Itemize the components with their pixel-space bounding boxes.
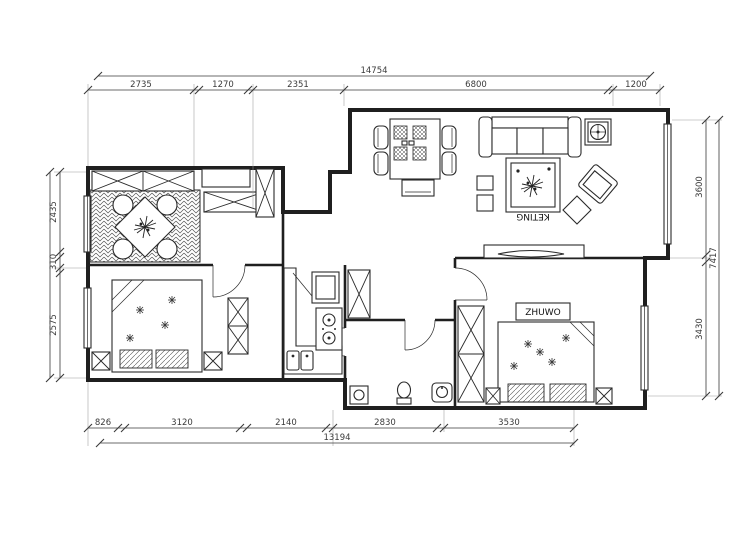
toilet [397,382,411,404]
dim-label: 2351 [287,80,309,90]
tatami-room [90,169,274,262]
dining-chair [442,126,456,149]
cabinet-column [348,270,370,318]
side-table [477,176,493,190]
dim-label: 2575 [49,314,59,336]
master-bedroom-label: ZHUWO [525,308,561,318]
dim-label: 3600 [695,176,705,198]
wardrobe-master [458,306,484,402]
dim-label: 3430 [695,318,705,340]
nightstand [204,352,222,370]
pillow [156,350,188,368]
place-setting [394,126,407,139]
nightstand [92,352,110,370]
bathroom [350,382,452,404]
ottoman [563,196,591,224]
door-bedroom2 [213,265,245,297]
dining-chair [374,126,388,149]
dim-label: 3530 [498,418,520,428]
dim-total-label: 13194 [323,433,350,443]
sofa [479,117,581,157]
side-table [477,195,493,211]
dim-label: 6800 [465,80,487,90]
floor-plan-canvas: ZHUWO [0,0,740,551]
door-bathroom [405,320,435,350]
dining-chair [374,152,388,175]
rug [506,158,560,212]
dim-label: 2830 [374,418,396,428]
wardrobe-tatami [92,171,194,191]
door-master-bedroom [455,268,487,300]
plant-stand-corner [585,119,611,145]
dimension-left: 2435 310 2575 [46,168,86,382]
washbasin [432,383,452,402]
wardrobe-bedroom2 [228,298,248,354]
dim-label: 2735 [130,80,152,90]
window-bedroom2 [84,288,91,348]
tv-cabinet [484,245,584,258]
nightstand [596,388,612,404]
dim-label: 2140 [275,418,297,428]
stove [316,308,342,350]
window-master [641,306,648,390]
dim-label: 310 [49,254,59,270]
window-living [664,124,671,244]
floor-plan-page: ZHUWO [0,0,740,551]
bench [402,180,434,196]
place-setting [394,147,407,160]
dim-label: 1270 [212,80,234,90]
cabinet-top [202,169,250,187]
pillow [550,384,586,402]
dining-area [374,119,456,196]
living-room: KETING [477,117,618,258]
place-setting [413,126,426,139]
dim-label: 3120 [171,418,193,428]
nightstand [486,388,500,404]
cabinet-x-horizontal [204,192,264,212]
fridge [293,272,339,303]
dining-chair [442,152,456,175]
dim-total-label: 14754 [360,66,387,76]
dim-total-label: 7417 [709,247,719,269]
dim-label: 826 [95,418,111,428]
pillow [120,350,152,368]
master-bedroom: ZHUWO [458,303,612,404]
place-setting [413,147,426,160]
pillow [508,384,544,402]
living-room-label: KETING [516,211,549,221]
washing-machine [350,386,368,404]
dim-label: 1200 [625,80,647,90]
cabinet-x-vertical [256,169,274,217]
dim-label: 2435 [49,201,59,223]
bedroom2 [92,280,248,372]
armchair [578,164,619,205]
tea-table-set [113,195,177,259]
